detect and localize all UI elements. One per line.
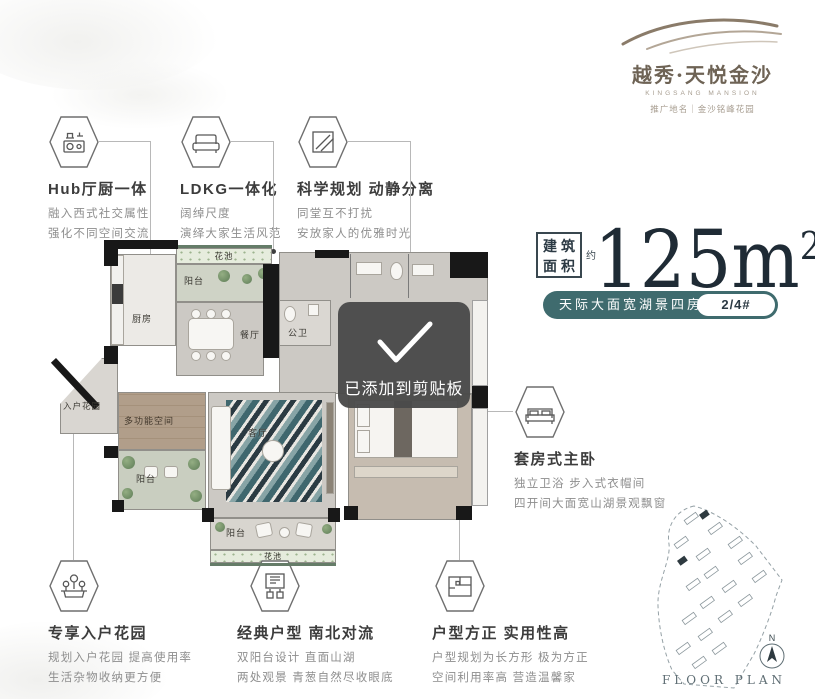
wall bbox=[263, 264, 279, 358]
plant bbox=[188, 458, 200, 470]
leader-line bbox=[347, 141, 410, 142]
compass-icon: N bbox=[760, 633, 784, 668]
leader-line bbox=[273, 141, 274, 251]
chair bbox=[191, 351, 201, 361]
feature-line: 空间利用率高 营造温馨家 bbox=[432, 668, 630, 688]
site-plan-title: FLOOR PLAN bbox=[662, 673, 786, 687]
bay-window bbox=[472, 300, 488, 386]
room-label: 多功能空间 bbox=[124, 414, 174, 427]
tv-cabinet bbox=[326, 402, 334, 494]
pillow bbox=[357, 430, 370, 453]
feature-line: 生活杂物收纳更方便 bbox=[48, 668, 236, 688]
window-icon bbox=[295, 114, 351, 170]
planter-edge bbox=[210, 563, 336, 566]
clipboard-toast: 已添加到剪贴板 bbox=[338, 302, 470, 408]
plant bbox=[322, 524, 332, 534]
plant bbox=[122, 456, 135, 469]
wall bbox=[456, 506, 472, 520]
feature-line: 户型规划为长方形 极为方正 bbox=[432, 648, 630, 668]
feature-title: 户型方正 实用性高 bbox=[432, 622, 630, 643]
compass-label: N bbox=[769, 633, 776, 643]
wall bbox=[315, 250, 349, 258]
feature-title: 套房式主卧 bbox=[514, 448, 712, 469]
feature-title: 经典户型 南北对流 bbox=[237, 622, 435, 643]
chair bbox=[191, 309, 201, 319]
brand-subtitle: 推广地名｜金沙铭峰花园 bbox=[605, 103, 800, 115]
dining-table bbox=[188, 318, 234, 350]
site-plan: N FLOOR PLAN bbox=[642, 496, 807, 696]
sink bbox=[308, 304, 319, 316]
room-label: 餐厅 bbox=[240, 328, 260, 341]
site-marker bbox=[677, 556, 688, 566]
site-buildings bbox=[674, 512, 766, 668]
tagline-text: 天际大面宽湖景四房 bbox=[559, 291, 703, 319]
tagline-pill: 天际大面宽湖景四房 2/4# bbox=[543, 291, 778, 319]
garden-icon bbox=[46, 558, 102, 614]
feature-square-layout: 户型方正 实用性高 户型规划为长方形 极为方正 空间利用率高 营造温馨家 bbox=[430, 558, 630, 688]
chair bbox=[164, 466, 178, 478]
bed-icon bbox=[512, 384, 568, 440]
feature-line: 双阳台设计 直面山湖 bbox=[237, 648, 435, 668]
area-label-box: 建筑 面积 bbox=[536, 232, 582, 278]
toilet bbox=[390, 262, 403, 280]
area-label-line: 建筑 bbox=[542, 236, 580, 256]
coffee-table bbox=[262, 440, 284, 462]
chair bbox=[206, 309, 216, 319]
wall bbox=[104, 446, 118, 458]
plant bbox=[190, 490, 202, 502]
feature-dual-balcony: 经典户型 南北对流 双阳台设计 直面山湖 两处观景 青葱自然尽收眼底 bbox=[235, 558, 435, 688]
bath-counter bbox=[412, 264, 434, 276]
cloud-decoration bbox=[0, 0, 220, 90]
room-label: 入户花园 bbox=[63, 400, 101, 412]
brand-name-en: KINGSANG MANSION bbox=[605, 90, 800, 97]
brand-logo: 越秀·天悦金沙 KINGSANG MANSION 推广地名｜金沙铭峰花园 bbox=[605, 6, 800, 115]
bath-sink bbox=[356, 262, 382, 275]
toilet bbox=[284, 306, 296, 322]
room-label: 厨房 bbox=[132, 312, 152, 325]
feature-line: 独立卫浴 步入式衣帽间 bbox=[514, 474, 712, 494]
room-label: 花池 bbox=[176, 250, 272, 262]
feature-zoning: 科学规划 动静分离 同堂互不打扰 安放家人的优雅时光 bbox=[295, 114, 470, 244]
leader-line bbox=[98, 141, 150, 142]
room-label: 阳台 bbox=[184, 274, 204, 287]
chair bbox=[221, 309, 231, 319]
interior-wall bbox=[350, 254, 351, 298]
interior-wall bbox=[408, 254, 409, 298]
area-unit-sup: 2 bbox=[800, 224, 815, 268]
feature-line: 同堂互不打扰 bbox=[297, 204, 470, 224]
wall bbox=[202, 508, 214, 522]
bay-window bbox=[472, 408, 488, 506]
feature-line: 两处观景 青葱自然尽收眼底 bbox=[237, 668, 435, 688]
wall bbox=[344, 506, 358, 520]
side-table bbox=[279, 527, 290, 538]
room-label: 阳台 bbox=[136, 472, 156, 485]
sofa bbox=[211, 406, 231, 490]
leader-line bbox=[410, 141, 411, 255]
chair bbox=[295, 522, 313, 539]
wall bbox=[450, 252, 488, 278]
bed-throw bbox=[394, 401, 412, 457]
wall bbox=[328, 508, 340, 522]
leader-line bbox=[230, 141, 273, 142]
brand-name: 越秀·天悦金沙 bbox=[605, 59, 800, 88]
chair bbox=[221, 351, 231, 361]
planter-edge bbox=[176, 245, 272, 248]
kitchen-icon bbox=[46, 114, 102, 170]
plant bbox=[242, 274, 252, 284]
room-label: 花池 bbox=[210, 551, 336, 562]
stove bbox=[112, 284, 123, 304]
room-label: 阳台 bbox=[226, 526, 246, 539]
sofa-icon bbox=[178, 114, 234, 170]
wall bbox=[104, 346, 118, 364]
chair bbox=[206, 351, 216, 361]
area-label-line: 面积 bbox=[542, 256, 580, 276]
wall bbox=[472, 386, 488, 408]
plant bbox=[122, 488, 133, 499]
feature-master-suite: 套房式主卧 独立卫浴 步入式衣帽间 四开间大面宽山湖景观飘窗 bbox=[512, 384, 712, 514]
bed-bench bbox=[354, 466, 458, 478]
checkmark-icon bbox=[338, 302, 470, 372]
plant bbox=[215, 522, 225, 532]
feature-entry-garden: 专享入户花园 规划入户花园 提高使用率 生活杂物收纳更方便 bbox=[46, 558, 236, 688]
wall bbox=[116, 240, 178, 249]
poster-canvas: 越秀·天悦金沙 KINGSANG MANSION 推广地名｜金沙铭峰花园 Hub… bbox=[0, 0, 815, 699]
balcony-icon bbox=[247, 558, 303, 614]
room-label: 公卫 bbox=[288, 326, 308, 339]
room-label: 客厅 bbox=[248, 426, 268, 439]
feature-title: 科学规划 动静分离 bbox=[297, 178, 470, 199]
plan-icon bbox=[432, 558, 488, 614]
logo-swoosh-icon bbox=[605, 6, 800, 56]
wall bbox=[112, 500, 124, 512]
building-badge: 2/4# bbox=[697, 294, 775, 316]
toast-message: 已添加到剪贴板 bbox=[338, 375, 470, 399]
feature-line: 规划入户花园 提高使用率 bbox=[48, 648, 236, 668]
feature-title: 专享入户花园 bbox=[48, 622, 236, 643]
plant bbox=[218, 270, 230, 282]
